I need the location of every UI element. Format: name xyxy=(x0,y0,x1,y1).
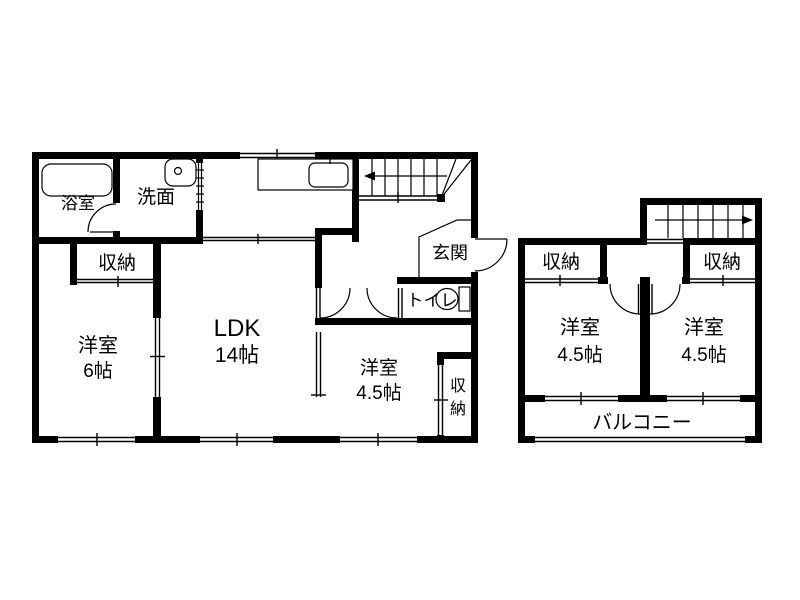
floor2: 収納 収納 洋室 4.5帖 洋室 4.5帖 バルコニー xyxy=(518,198,762,443)
label-bed45-name: 洋室 xyxy=(360,357,398,379)
label-ldk-size: 14帖 xyxy=(215,344,259,367)
label-balcony: バルコニー xyxy=(592,412,692,434)
label-washroom: 洗面 xyxy=(137,186,175,208)
floor-plan-page: 浴室 洗面 収納 洋室 6帖 LDK 14帖 玄関 トイレ 洋室 4.5帖 収 … xyxy=(0,0,800,600)
closet-se-door xyxy=(434,365,448,435)
window xyxy=(200,433,273,446)
label-closet-se-1: 収 xyxy=(450,377,466,395)
stairs-2f xyxy=(655,205,753,238)
bed-r-door xyxy=(649,284,681,314)
label-ldk-name: LDK xyxy=(214,315,261,342)
label-bed6-size: 6帖 xyxy=(83,360,113,382)
label-bed-l-name: 洋室 xyxy=(560,316,600,339)
label-entrance: 玄関 xyxy=(432,243,468,263)
stairs-1f xyxy=(359,159,471,203)
ldk-door xyxy=(317,288,351,318)
bathtub xyxy=(42,164,112,196)
label-toilet: トイレ xyxy=(407,291,458,310)
bed45-sliding-door xyxy=(311,332,326,397)
washroom-sink xyxy=(165,159,196,186)
label-bed6-name: 洋室 xyxy=(78,334,118,357)
stairs-up-arrow xyxy=(742,216,753,225)
label-bath: 浴室 xyxy=(61,194,95,213)
washroom-door xyxy=(196,163,204,210)
bed-l-door xyxy=(610,284,642,314)
floor1: 浴室 洗面 収納 洋室 6帖 LDK 14帖 玄関 トイレ 洋室 4.5帖 収 … xyxy=(32,149,507,446)
label-bed45-size: 4.5帖 xyxy=(356,382,401,404)
window xyxy=(340,433,417,446)
label-closet-nw: 収納 xyxy=(98,252,136,274)
window xyxy=(667,392,740,405)
label-closet-l: 収納 xyxy=(542,251,580,273)
closet-r-door xyxy=(690,275,755,286)
label-bed-l-size: 4.5帖 xyxy=(557,344,602,366)
front-door xyxy=(475,239,507,271)
label-bed-r-name: 洋室 xyxy=(684,316,724,339)
label-bed-r-size: 4.5帖 xyxy=(681,344,726,366)
toilet-door xyxy=(367,288,402,318)
window xyxy=(545,392,618,405)
stair-landing-opening xyxy=(647,240,683,244)
window xyxy=(58,433,135,446)
closet-nw-door xyxy=(77,276,153,287)
stairs-up-arrow xyxy=(364,172,375,181)
label-closet-se-2: 納 xyxy=(450,400,466,418)
balcony-railing xyxy=(518,436,762,443)
bed6-sliding-door xyxy=(150,318,165,397)
closet-l-door xyxy=(525,275,598,286)
kitchen-boundary xyxy=(202,234,315,244)
label-closet-r: 収納 xyxy=(703,251,741,273)
floor-plan-svg: 浴室 洗面 収納 洋室 6帖 LDK 14帖 玄関 トイレ 洋室 4.5帖 収 … xyxy=(0,0,800,600)
